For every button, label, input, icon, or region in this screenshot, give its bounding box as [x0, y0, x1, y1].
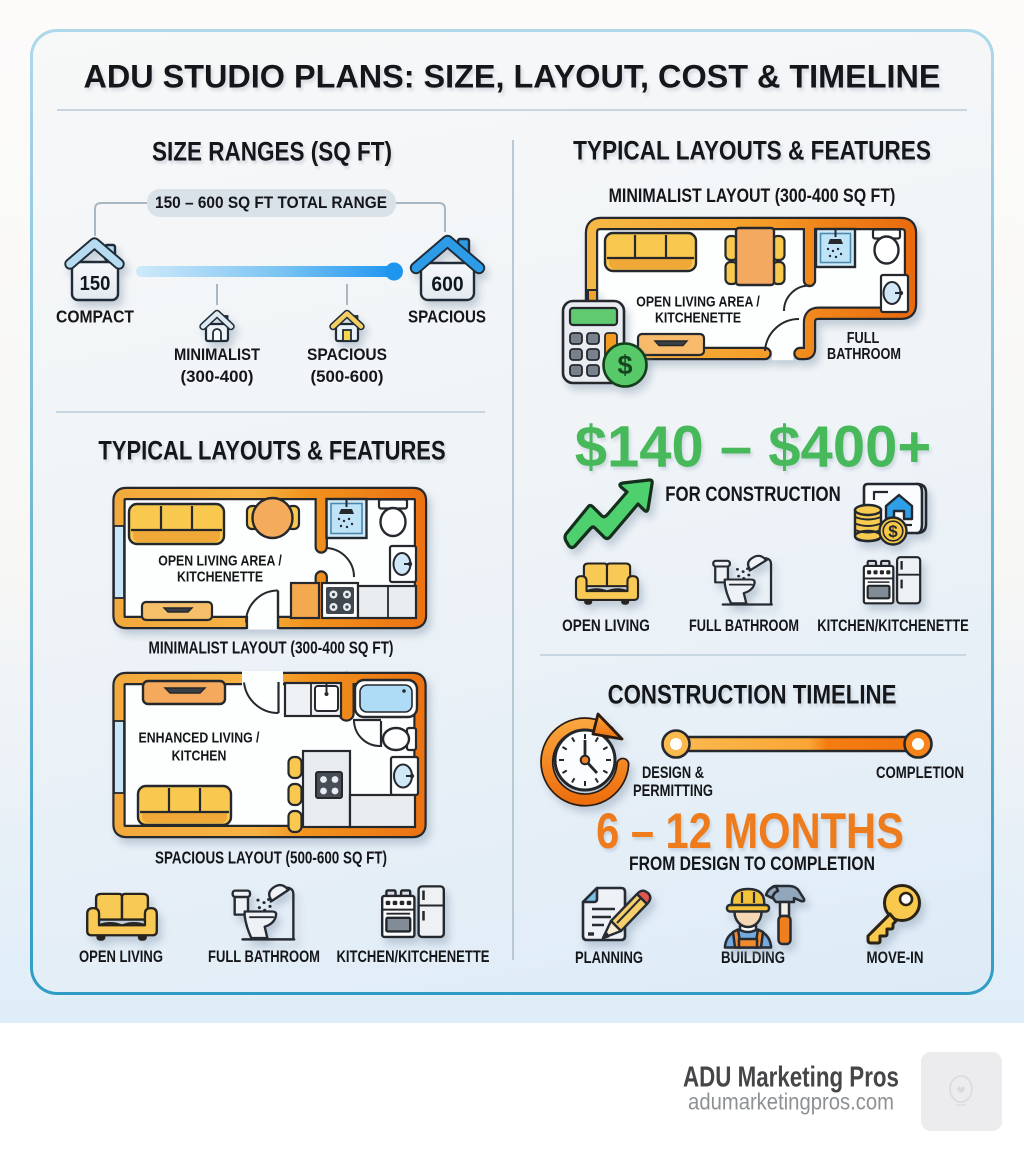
svg-text:$: $ — [888, 522, 898, 541]
svg-text:150: 150 — [80, 273, 111, 295]
svg-text:600: 600 — [431, 273, 463, 296]
svg-text:$: $ — [617, 350, 632, 380]
